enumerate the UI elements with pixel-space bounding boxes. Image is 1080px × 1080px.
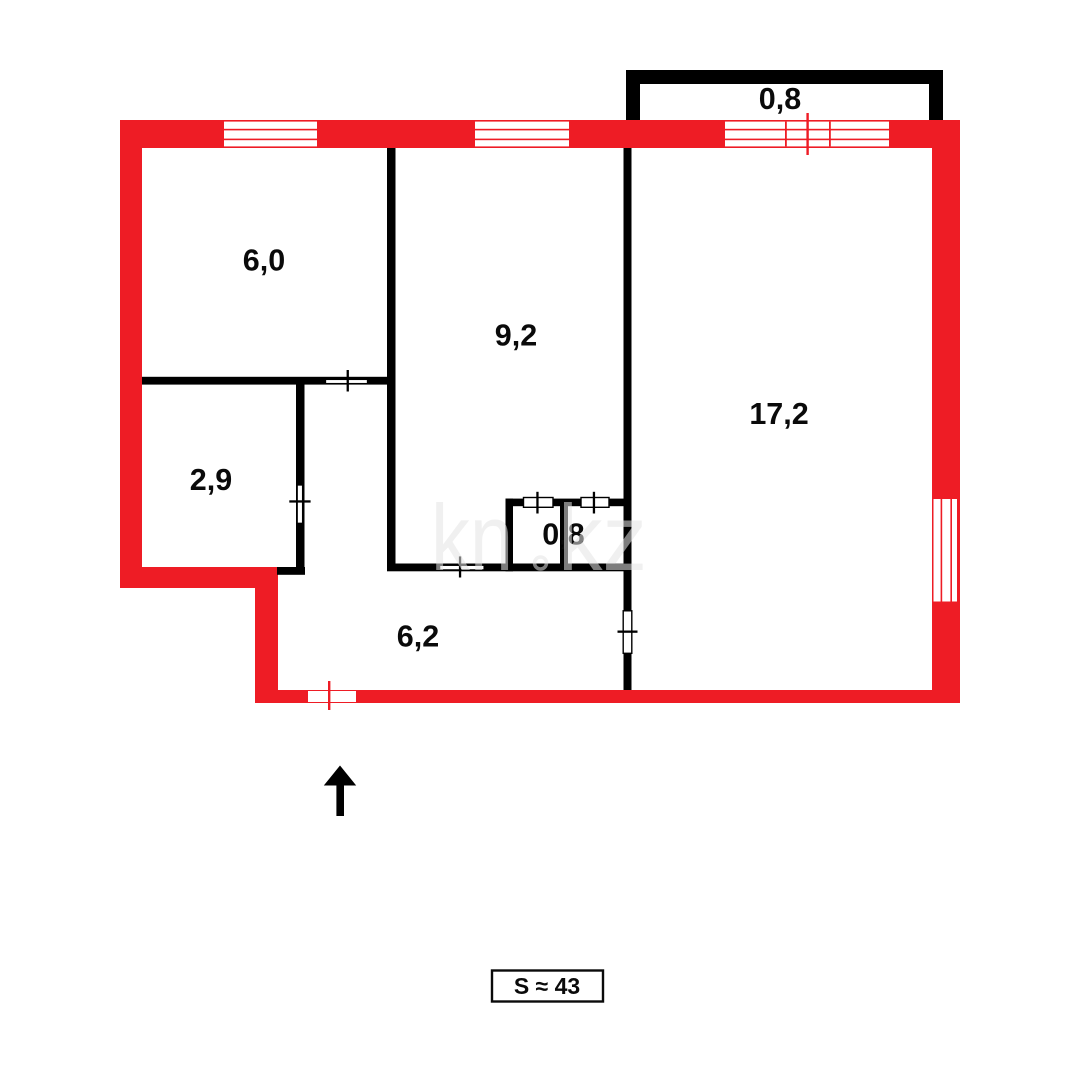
svg-text:kn: kn xyxy=(431,485,513,590)
svg-text:6,0: 6,0 xyxy=(243,244,285,278)
svg-text:9,2: 9,2 xyxy=(495,319,537,353)
svg-text:17,2: 17,2 xyxy=(749,397,808,431)
svg-text:2,9: 2,9 xyxy=(190,463,232,497)
svg-text:S ≈ 43: S ≈ 43 xyxy=(514,973,580,999)
svg-text:0,8: 0,8 xyxy=(759,82,801,116)
svg-text:6,2: 6,2 xyxy=(397,619,439,653)
svg-text:kz: kz xyxy=(558,485,647,590)
